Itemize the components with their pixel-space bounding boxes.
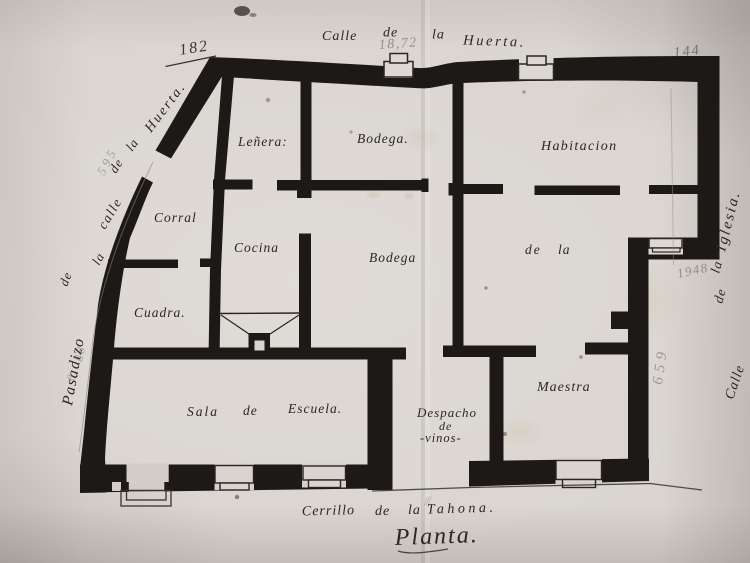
- svg-text:18,72: 18,72: [378, 35, 418, 53]
- svg-text:Cocina: Cocina: [234, 240, 279, 255]
- svg-text:Corral: Corral: [154, 210, 197, 225]
- svg-text:Huerta.: Huerta.: [462, 32, 526, 50]
- svg-text:Cerrillo: Cerrillo: [302, 503, 355, 519]
- svg-text:Bodega: Bodega: [369, 250, 416, 265]
- svg-text:Planta.: Planta.: [393, 522, 479, 551]
- svg-text:-vinos-: -vinos-: [420, 431, 462, 445]
- svg-text:Maestra: Maestra: [536, 380, 591, 395]
- svg-text:Despacho: Despacho: [416, 405, 477, 420]
- svg-text:144: 144: [673, 42, 702, 61]
- svg-text:la: la: [432, 28, 445, 43]
- svg-text:Escuela.: Escuela.: [287, 401, 342, 416]
- svg-text:de: de: [375, 504, 390, 519]
- svg-text:la: la: [408, 503, 421, 518]
- svg-text:de: de: [525, 242, 542, 257]
- svg-text:Bodega.: Bodega.: [357, 131, 409, 146]
- svg-text:la: la: [558, 242, 571, 257]
- svg-text:Cuadra.: Cuadra.: [134, 305, 186, 320]
- svg-text:Tahona.: Tahona.: [427, 501, 497, 518]
- svg-text:Sala: Sala: [187, 404, 219, 419]
- svg-text:Leñera:: Leñera:: [237, 134, 288, 149]
- svg-text:Habitacion: Habitacion: [540, 139, 618, 154]
- svg-text:Calle: Calle: [322, 29, 357, 44]
- svg-text:de: de: [243, 403, 258, 418]
